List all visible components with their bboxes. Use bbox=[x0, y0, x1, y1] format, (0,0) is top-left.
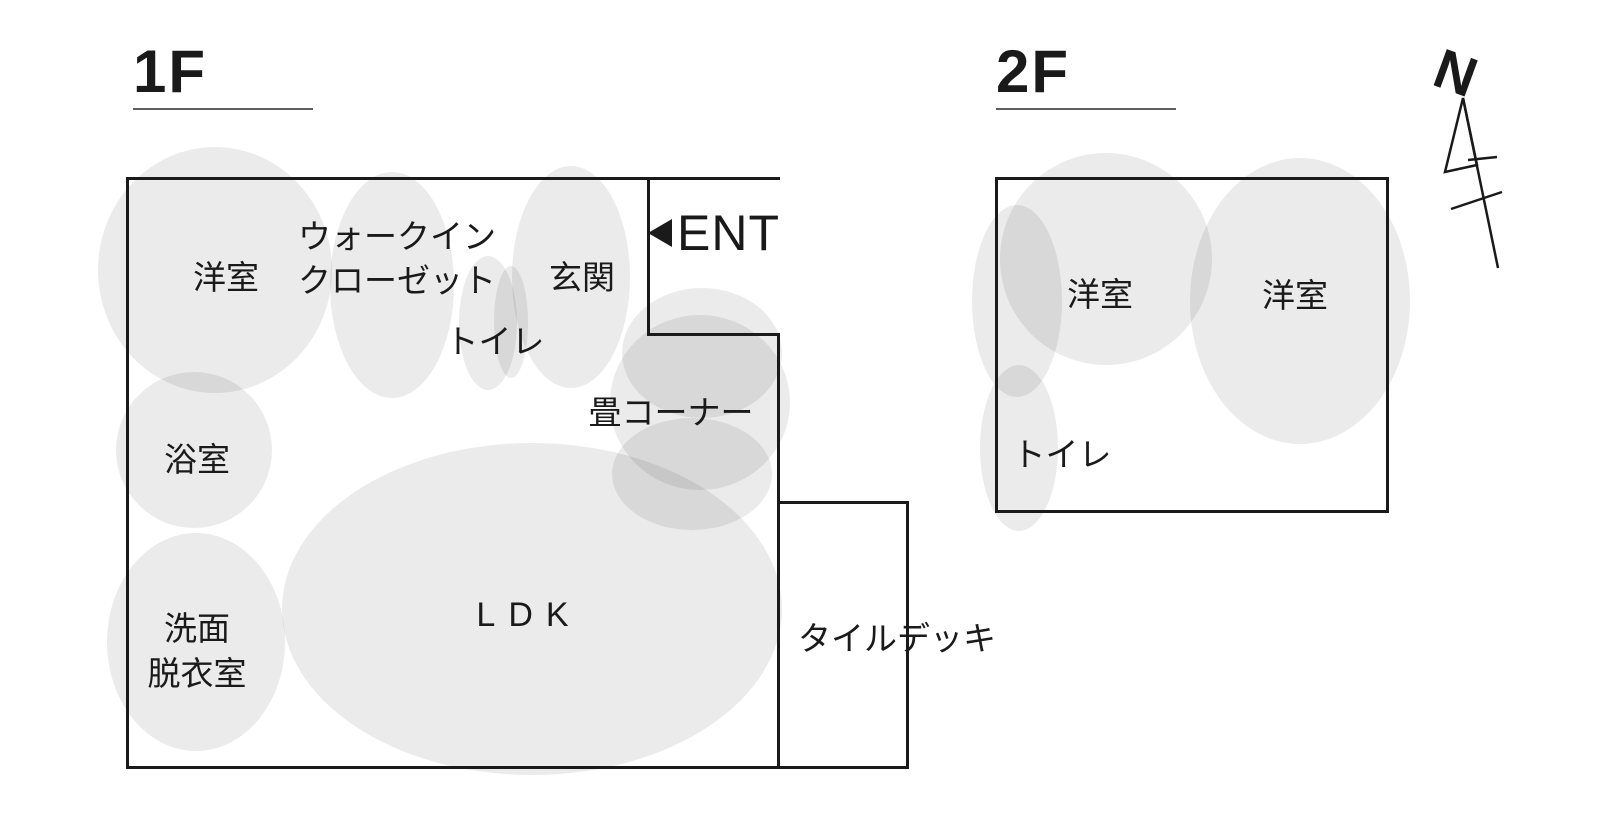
floor-2f-title-underline bbox=[996, 108, 1176, 110]
room-label-toilet-2f: トイレ bbox=[1013, 433, 1112, 477]
room-label-walk-in-closet-line2: クローゼット bbox=[298, 259, 496, 303]
room-label-tatami-corner: 畳コーナー bbox=[589, 391, 754, 435]
entrance-arrow-icon bbox=[648, 219, 672, 247]
room-label-western-room-2f-right: 洋室 bbox=[1262, 274, 1328, 318]
north-arrow-head bbox=[1445, 98, 1477, 172]
wall-1f-left bbox=[126, 177, 129, 769]
room-label-bathroom: 浴室 bbox=[164, 438, 230, 482]
north-arrow: N bbox=[1400, 35, 1520, 285]
room-label-tile-deck: タイルデッキ bbox=[798, 617, 996, 661]
room-label-washroom-line2: 脱衣室 bbox=[148, 651, 247, 696]
floor-1f-title: 1F bbox=[133, 40, 207, 104]
room-label-entrance-hall: 玄関 bbox=[549, 256, 615, 300]
room-label-walk-in-closet: ウォークイン クローゼット bbox=[298, 215, 496, 303]
room-label-walk-in-closet-line1: ウォークイン bbox=[298, 215, 496, 259]
entrance-marker: ENT bbox=[648, 208, 780, 258]
north-arrow-tick-2 bbox=[1451, 192, 1502, 209]
room-label-washroom: 洗面 脱衣室 bbox=[148, 606, 247, 696]
floor-1f-title-underline bbox=[133, 108, 313, 110]
room-label-western-room-2f-left: 洋室 bbox=[1067, 273, 1133, 317]
room-label-washroom-line1: 洗面 bbox=[148, 606, 247, 651]
wall-1f-deck-top bbox=[777, 501, 909, 504]
wall-1f-porch-bottom bbox=[647, 333, 780, 336]
wall-1f-bottom bbox=[126, 766, 909, 769]
room-label-toilet-1f: トイレ bbox=[446, 320, 545, 364]
north-label: N bbox=[1426, 36, 1486, 109]
room-label-ldk: LDK bbox=[476, 593, 581, 637]
floor-plan-canvas: 1F 2F 洋室 ウォークイン クローゼット 玄関 トイレ 畳コーナー 浴室 洗… bbox=[0, 0, 1600, 839]
wall-1f-top bbox=[126, 177, 780, 180]
wall-1f-right bbox=[777, 333, 780, 769]
entrance-label: ENT bbox=[677, 208, 780, 258]
floor-2f-title: 2F bbox=[996, 40, 1070, 104]
room-label-western-room-1f: 洋室 bbox=[193, 256, 259, 300]
north-arrow-tick-1 bbox=[1468, 157, 1497, 160]
